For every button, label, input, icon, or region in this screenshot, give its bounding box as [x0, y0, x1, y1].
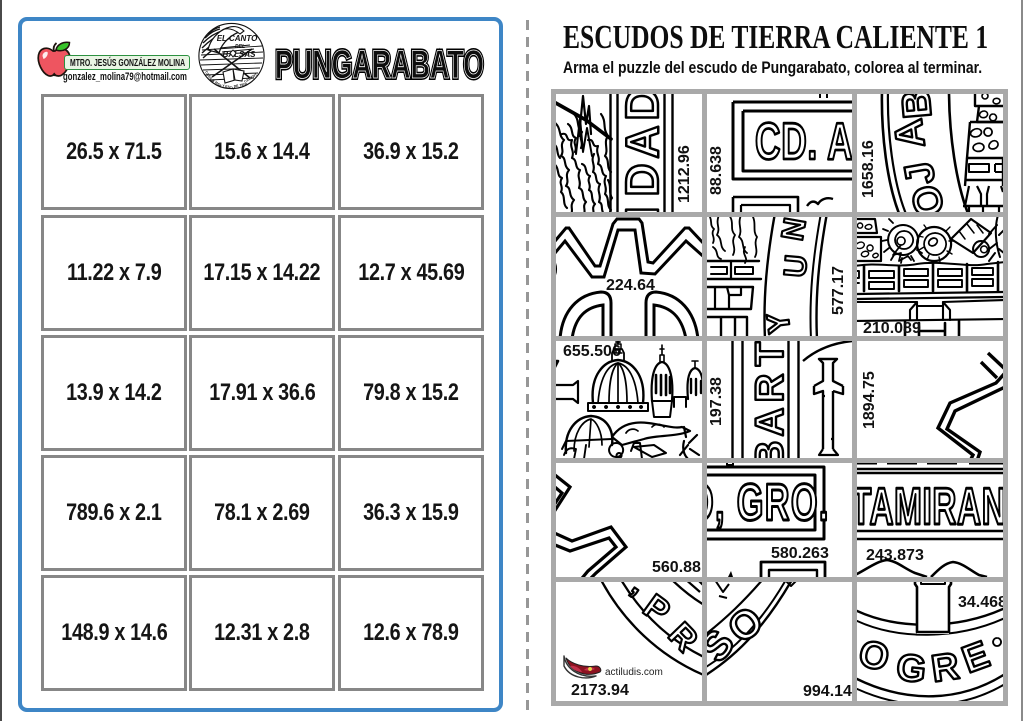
- svg-text:E: E: [957, 634, 995, 682]
- svg-text:A: A: [616, 125, 668, 158]
- svg-text:I: I: [616, 207, 668, 212]
- svg-text:actiludis.com: actiludis.com: [605, 667, 663, 678]
- svg-text:O: O: [857, 632, 893, 680]
- svg-text:577.17: 577.17: [830, 266, 847, 315]
- svg-text:994.14: 994.14: [803, 683, 852, 700]
- svg-text:1212.96: 1212.96: [676, 145, 693, 203]
- svg-text:R: R: [748, 373, 792, 402]
- svg-text:210.089: 210.089: [863, 320, 921, 336]
- svg-text:B: B: [748, 441, 792, 458]
- svg-text:580.263: 580.263: [771, 545, 829, 562]
- svg-text:U: U: [777, 253, 814, 278]
- svg-text:224.64: 224.64: [606, 277, 655, 294]
- svg-text:N: N: [774, 217, 812, 243]
- svg-text:1894.75: 1894.75: [861, 371, 878, 429]
- svg-text:2173.94: 2173.94: [571, 682, 629, 699]
- svg-text:34.468: 34.468: [958, 594, 1003, 611]
- svg-text:P: P: [636, 587, 677, 631]
- svg-text:A: A: [748, 408, 792, 437]
- svg-text:T: T: [748, 342, 792, 366]
- svg-text:G: G: [894, 647, 928, 692]
- svg-text:TAMIRANO: TAMIRANO: [857, 478, 1003, 536]
- svg-text:D: D: [616, 163, 668, 196]
- svg-text:CD. AL: CD. AL: [755, 113, 852, 170]
- svg-text:R: R: [929, 645, 962, 690]
- svg-text:EL CANTO: EL CANTO: [217, 34, 258, 43]
- svg-text:A: A: [887, 117, 934, 151]
- svg-text:197.38: 197.38: [708, 377, 725, 426]
- svg-text:O, GRO.: O, GRO.: [707, 474, 830, 532]
- svg-text:B: B: [894, 94, 940, 120]
- svg-text:1658.16: 1658.16: [860, 140, 877, 198]
- svg-text:D: D: [616, 94, 668, 121]
- svg-text:88.638: 88.638: [708, 146, 725, 195]
- svg-text:560.88: 560.88: [652, 559, 701, 576]
